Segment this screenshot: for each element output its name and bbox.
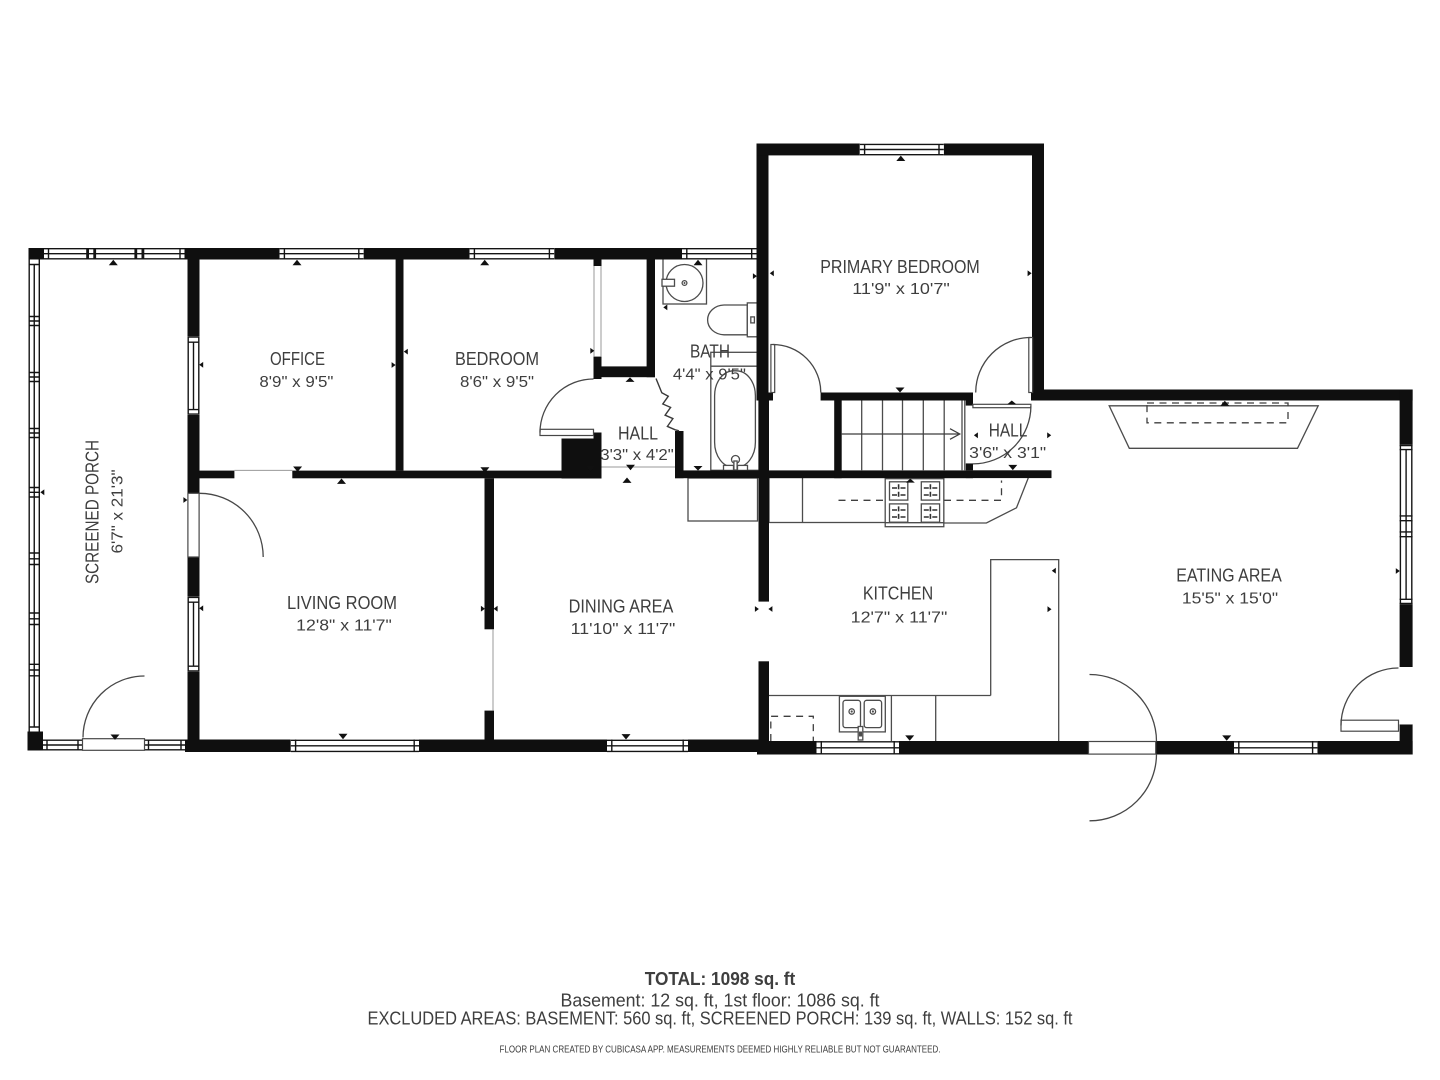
svg-text:SCREENED PORCH: SCREENED PORCH — [81, 440, 102, 584]
svg-text:3'6" x 3'1": 3'6" x 3'1" — [969, 445, 1046, 462]
svg-text:EATING AREA: EATING AREA — [1176, 565, 1282, 586]
svg-text:DINING AREA: DINING AREA — [569, 595, 674, 616]
svg-text:Basement: 12 sq. ft, 1st floor: Basement: 12 sq. ft, 1st floor: 1086 sq.… — [561, 991, 880, 1011]
svg-text:KITCHEN: KITCHEN — [863, 583, 933, 604]
svg-text:3'3" x 4'2": 3'3" x 4'2" — [600, 447, 674, 464]
svg-text:15'5" x 15'0": 15'5" x 15'0" — [1182, 591, 1278, 608]
svg-text:PRIMARY BEDROOM: PRIMARY BEDROOM — [820, 256, 980, 277]
svg-text:6'7" x 21'3": 6'7" x 21'3" — [109, 470, 126, 554]
svg-text:12'8" x 11'7": 12'8" x 11'7" — [296, 618, 392, 635]
svg-text:HALL: HALL — [989, 420, 1028, 441]
svg-text:TOTAL: 1098 sq. ft: TOTAL: 1098 sq. ft — [645, 969, 796, 989]
svg-text:LIVING ROOM: LIVING ROOM — [287, 592, 397, 613]
svg-text:FLOOR PLAN CREATED BY CUBICASA: FLOOR PLAN CREATED BY CUBICASA APP. MEAS… — [500, 1044, 941, 1055]
svg-text:OFFICE: OFFICE — [270, 348, 325, 369]
svg-text:BEDROOM: BEDROOM — [455, 348, 539, 369]
svg-text:12'7" x 11'7": 12'7" x 11'7" — [851, 610, 948, 627]
svg-text:EXCLUDED AREAS: BASEMENT: 560: EXCLUDED AREAS: BASEMENT: 560 sq. ft, SC… — [368, 1009, 1073, 1029]
svg-text:8'6" x 9'5": 8'6" x 9'5" — [460, 374, 534, 391]
svg-text:HALL: HALL — [618, 423, 658, 444]
svg-text:11'9" x 10'7": 11'9" x 10'7" — [852, 281, 950, 298]
svg-text:8'9" x 9'5": 8'9" x 9'5" — [259, 374, 333, 391]
svg-text:4'4" x 9'5": 4'4" x 9'5" — [673, 367, 746, 384]
svg-text:BATH: BATH — [690, 341, 730, 362]
svg-text:11'10" x 11'7": 11'10" x 11'7" — [571, 621, 676, 638]
